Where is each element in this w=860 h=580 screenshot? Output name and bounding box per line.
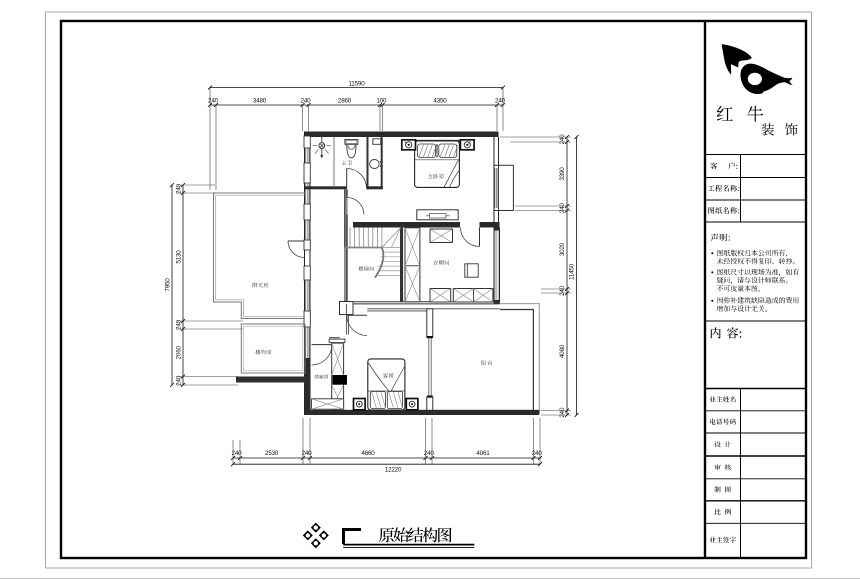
svg-text:4660: 4660	[361, 450, 375, 457]
svg-text:2060: 2060	[175, 346, 182, 360]
svg-text:12220: 12220	[385, 467, 402, 474]
svg-text:3390: 3390	[559, 167, 566, 181]
svg-text:4080: 4080	[559, 344, 566, 358]
svg-text:100: 100	[376, 97, 387, 104]
svg-text:240: 240	[559, 203, 566, 214]
svg-text:240: 240	[559, 407, 566, 418]
svg-text:7950: 7950	[165, 278, 172, 292]
svg-text:2860: 2860	[338, 97, 352, 104]
svg-text:240: 240	[559, 134, 566, 145]
svg-text:240: 240	[208, 97, 219, 104]
svg-text:11590: 11590	[348, 80, 365, 87]
svg-text:2530: 2530	[265, 450, 279, 457]
svg-text:240: 240	[301, 97, 312, 104]
svg-text:240: 240	[495, 97, 506, 104]
svg-text:4061: 4061	[476, 450, 490, 457]
svg-text:4350: 4350	[433, 97, 447, 104]
svg-text:5130: 5130	[175, 250, 182, 264]
svg-text:240: 240	[559, 285, 566, 296]
svg-text:11450: 11450	[569, 263, 576, 280]
svg-text:3480: 3480	[253, 97, 267, 104]
svg-text:3020: 3020	[559, 242, 566, 256]
